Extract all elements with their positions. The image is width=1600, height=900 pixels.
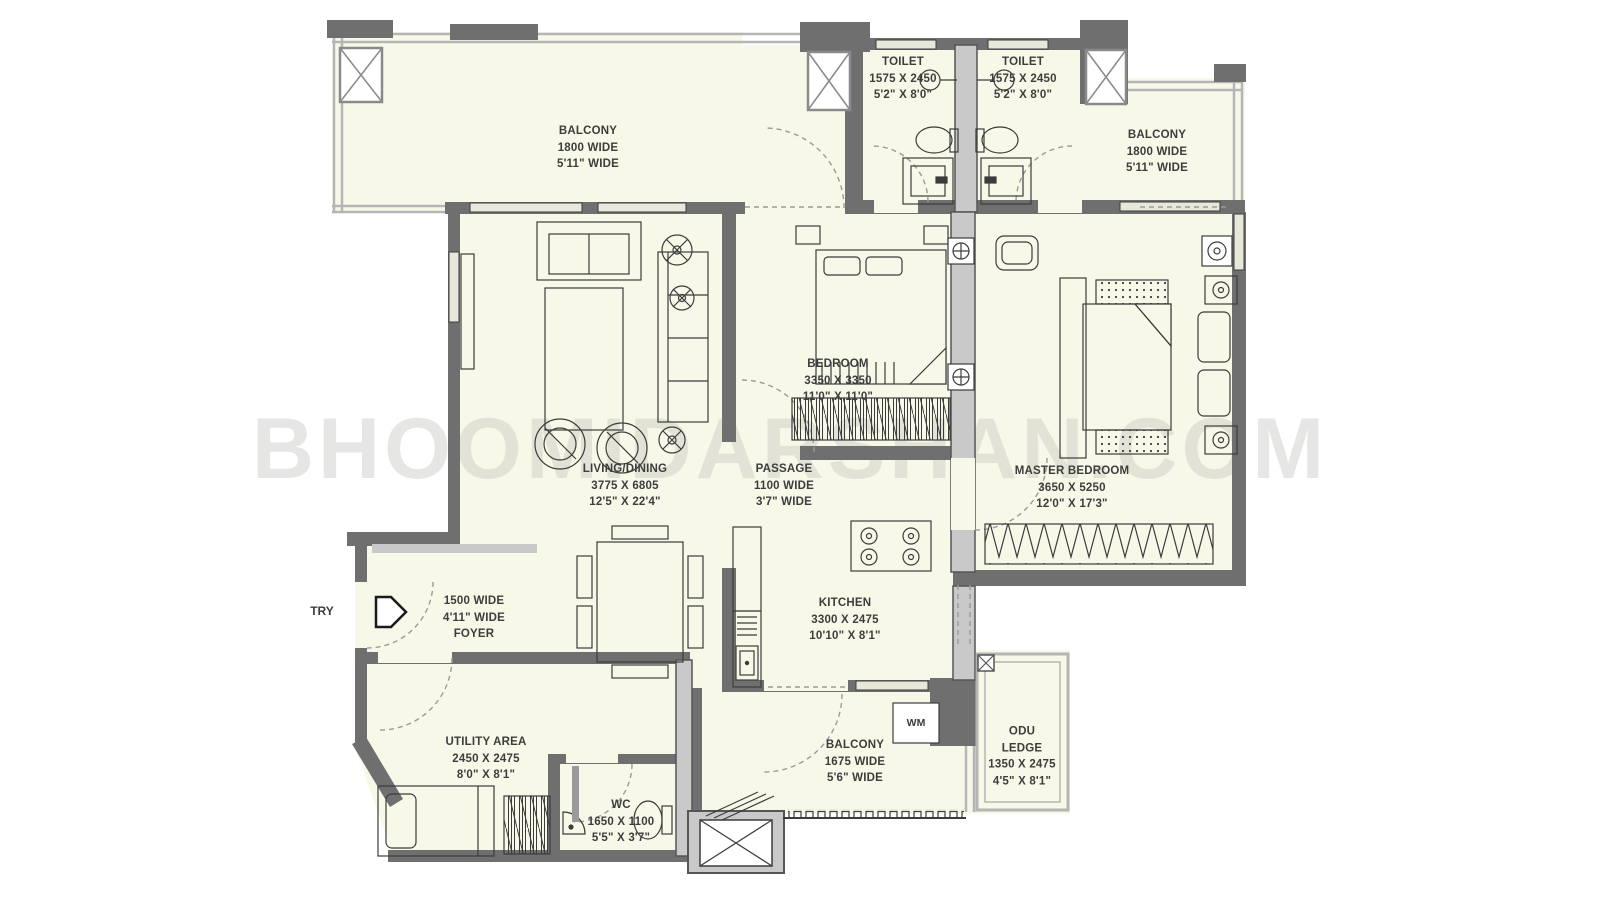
room-label-utility-area: UTILITY AREA 2450 X 2475 8'0" X 8'1" (446, 734, 527, 784)
washing-machine-label: WM (907, 717, 926, 729)
room-dim-ft: 5'2" X 8'0" (869, 87, 936, 104)
room-dim-ft: 12'0" X 17'3" (1015, 496, 1130, 513)
room-label-balcony-top-left: BALCONY 1800 WIDE 5'11" WIDE (557, 123, 619, 173)
room-dim-ft: 5'6" WIDE (825, 770, 886, 787)
room-dim-mm: 1350 X 2475 (988, 757, 1055, 774)
room-label-wc: WC 1650 X 1100 5'5" X 3'7" (588, 797, 655, 847)
room-name: MASTER BEDROOM (1015, 463, 1130, 480)
room-dim-mm: 3775 X 6805 (583, 478, 667, 495)
room-name: KITCHEN (809, 595, 880, 612)
room-dim-ft: 4'5" X 8'1" (988, 774, 1055, 791)
room-dim-mm: 1575 X 2450 (869, 71, 936, 88)
room-name: BALCONY (557, 123, 619, 140)
room-dim-ft: 4'11" WIDE (443, 610, 505, 627)
room-dim-mm: 1675 WIDE (825, 754, 886, 771)
room-name: ODU (988, 724, 1055, 741)
room-name: BEDROOM (803, 356, 873, 373)
room-dim-ft: 10'10" X 8'1" (809, 628, 880, 645)
room-dim-mm: 1800 WIDE (557, 140, 619, 157)
room-dim-ft: 3'7" WIDE (754, 494, 814, 511)
room-name: LIVING/DINING (583, 461, 667, 478)
room-dim-ft: 5'2" X 8'0" (989, 87, 1056, 104)
room-label-foyer: 1500 WIDE 4'11" WIDE FOYER (443, 593, 505, 643)
room-label-balcony-top-right: BALCONY 1800 WIDE 5'11" WIDE (1126, 127, 1188, 177)
room-label-master-bedroom: MASTER BEDROOM 3650 X 5250 12'0" X 17'3" (1015, 463, 1130, 513)
room-dim-mm: 1100 WIDE (754, 478, 814, 495)
entry-label: TRY (310, 604, 334, 618)
room-dim-mm: 1800 WIDE (1126, 144, 1188, 161)
room-name: UTILITY AREA (446, 734, 527, 751)
room-dim-mm: 3350 X 3350 (803, 373, 873, 390)
room-label-balcony-bottom: BALCONY 1675 WIDE 5'6" WIDE (825, 737, 886, 787)
room-name-2: LEDGE (988, 740, 1055, 757)
room-dim-ft: 8'0" X 8'1" (446, 767, 527, 784)
room-dim-mm: 1500 WIDE (443, 593, 505, 610)
room-name: BALCONY (1126, 127, 1188, 144)
room-label-bedroom: BEDROOM 3350 X 3350 11'0" X 11'0" (803, 356, 873, 406)
room-dim-ft: 12'5" X 22'4" (583, 494, 667, 511)
room-label-odu-ledge: ODU LEDGE 1350 X 2475 4'5" X 8'1" (988, 724, 1055, 791)
room-label-living-dining: LIVING/DINING 3775 X 6805 12'5" X 22'4" (583, 461, 667, 511)
room-label-kitchen: KITCHEN 3300 X 2475 10'10" X 8'1" (809, 595, 880, 645)
room-dim-ft: 11'0" X 11'0" (803, 389, 873, 406)
room-name: TOILET (869, 54, 936, 71)
room-dim-ft: 5'11" WIDE (1126, 160, 1188, 177)
room-dim-mm: 1575 X 2450 (989, 71, 1056, 88)
room-name: PASSAGE (754, 461, 814, 478)
room-dim-ft: 5'5" X 3'7" (588, 830, 655, 847)
room-label-toilet-left: TOILET 1575 X 2450 5'2" X 8'0" (869, 54, 936, 104)
room-name: BALCONY (825, 737, 886, 754)
room-dim-mm: 2450 X 2475 (446, 751, 527, 768)
room-label-toilet-right: TOILET 1575 X 2450 5'2" X 8'0" (989, 54, 1056, 104)
room-dim-mm: 3650 X 5250 (1015, 480, 1130, 497)
room-name: WC (588, 797, 655, 814)
room-dim-ft: 5'11" WIDE (557, 156, 619, 173)
floor-plan-drawing: BHOOMIDARSHAN.COM (0, 0, 1600, 900)
room-name: TOILET (989, 54, 1056, 71)
room-dim-mm: 1650 X 1100 (588, 814, 655, 831)
floor-plan-page: BHOOMIDARSHAN.COM (0, 0, 1600, 900)
room-name: FOYER (443, 626, 505, 643)
room-label-passage: PASSAGE 1100 WIDE 3'7" WIDE (754, 461, 814, 511)
room-dim-mm: 3300 X 2475 (809, 612, 880, 629)
